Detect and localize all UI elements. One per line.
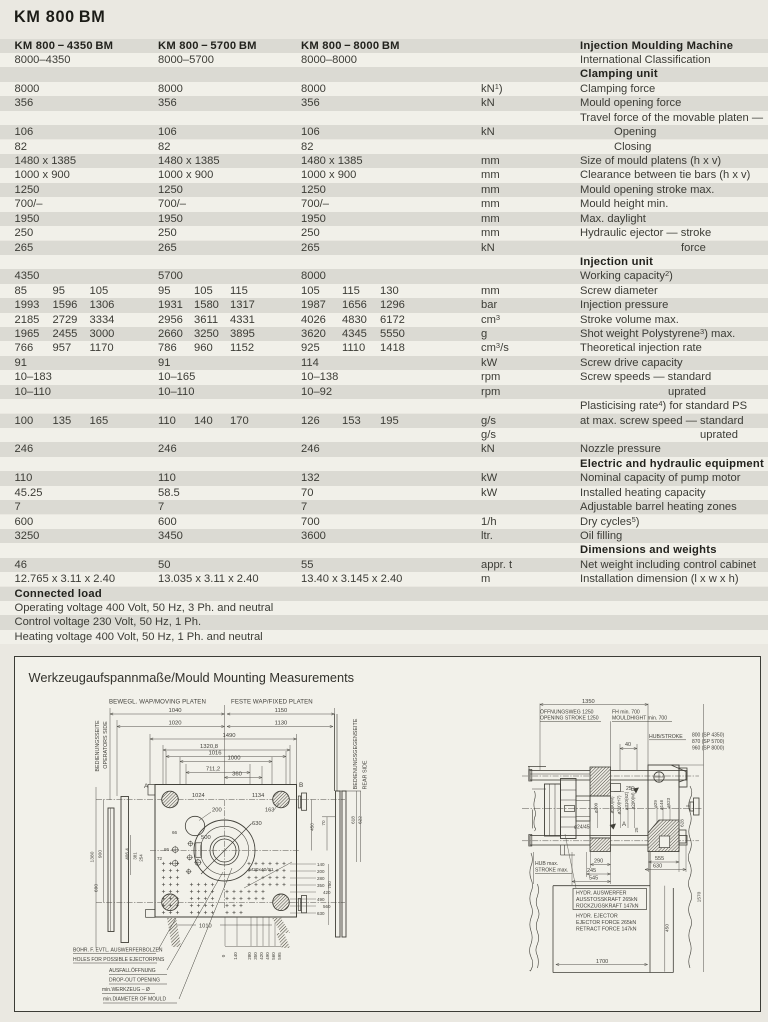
svg-text:280: 280 <box>247 952 252 960</box>
svg-text:628: 628 <box>680 819 685 827</box>
svg-text:1016: 1016 <box>208 750 222 756</box>
svg-text:163: 163 <box>265 808 274 814</box>
svg-text:1020: 1020 <box>168 720 182 726</box>
svg-text:560: 560 <box>323 904 331 909</box>
svg-text:ø500(M): ø500(M) <box>610 796 615 814</box>
svg-text:B: B <box>299 782 303 789</box>
svg-text:420: 420 <box>323 890 331 895</box>
svg-text:450: 450 <box>665 924 671 932</box>
svg-text:RÜCKZUGSKRAFT 147kN: RÜCKZUGSKRAFT 147kN <box>576 903 639 910</box>
svg-text:1350: 1350 <box>582 699 595 705</box>
svg-text:Werkzeugaufspannmaße/Mould Mou: Werkzeugaufspannmaße/Mould Mounting Meas… <box>29 670 355 685</box>
svg-text:200: 200 <box>212 808 222 814</box>
svg-text:1130: 1130 <box>275 720 288 726</box>
svg-text:140: 140 <box>317 862 325 867</box>
svg-text:ø200: ø200 <box>594 802 599 813</box>
svg-text:960 (SP 8000): 960 (SP 8000) <box>692 746 724 752</box>
svg-text:25: 25 <box>634 827 639 833</box>
svg-text:min.DIAMETER OF MOULD: min.DIAMETER OF MOULD <box>103 997 166 1003</box>
svg-text:595: 595 <box>277 952 282 960</box>
svg-text:1000: 1000 <box>227 755 241 761</box>
svg-text:HYDR. EJECTOR: HYDR. EJECTOR <box>576 914 618 920</box>
svg-text:140: 140 <box>233 952 238 960</box>
svg-text:86: 86 <box>164 847 170 852</box>
svg-text:ø29: ø29 <box>653 800 658 808</box>
svg-text:MOULDHIGHT min. 700: MOULDHIGHT min. 700 <box>612 716 667 722</box>
svg-text:70: 70 <box>321 820 326 826</box>
svg-text:500: 500 <box>201 835 211 841</box>
svg-text:AUSFALLÖFFNUNG: AUSFALLÖFFNUNG <box>109 967 156 974</box>
svg-text:555: 555 <box>655 856 664 862</box>
svg-text:900: 900 <box>98 850 104 858</box>
svg-text:630: 630 <box>653 864 662 870</box>
svg-text:M20x40/S1: M20x40/S1 <box>249 867 274 873</box>
svg-text:1320,8: 1320,8 <box>200 744 219 750</box>
svg-text:1700: 1700 <box>596 959 608 965</box>
svg-text:BEWEGL. WAP/MOVING PLATEN: BEWEGL. WAP/MOVING PLATEN <box>109 699 206 706</box>
svg-text:750: 750 <box>327 881 332 889</box>
svg-text:BEDIENUNGSSEITE: BEDIENUNGSSEITE <box>95 720 101 772</box>
svg-text:1380: 1380 <box>90 851 96 862</box>
svg-text:800 (SP 4350): 800 (SP 4350) <box>692 733 724 739</box>
svg-text:ø146: ø146 <box>659 799 664 810</box>
svg-text:STROKE max.: STROKE max. <box>535 868 568 874</box>
svg-text:72: 72 <box>157 856 163 861</box>
svg-text:ø310(H7): ø310(H7) <box>617 795 622 815</box>
svg-text:254: 254 <box>139 854 144 862</box>
svg-text:360: 360 <box>232 771 243 777</box>
svg-text:350: 350 <box>317 883 325 888</box>
svg-text:HUB/STROKE: HUB/STROKE <box>649 734 683 740</box>
svg-text:HOLES FOR POSSIBLE EJECTORPINS: HOLES FOR POSSIBLE EJECTORPINS <box>73 957 165 963</box>
svg-text:A: A <box>622 822 626 828</box>
svg-text:1570: 1570 <box>697 891 703 902</box>
svg-text:450: 450 <box>310 823 315 831</box>
svg-text:1150: 1150 <box>275 708 288 714</box>
svg-text:HUB max.: HUB max. <box>535 861 558 867</box>
svg-text:DROP-OUT OPENING: DROP-OUT OPENING <box>109 978 160 984</box>
svg-text:280: 280 <box>317 876 325 881</box>
svg-text:630: 630 <box>252 821 262 827</box>
svg-text:1134: 1134 <box>252 793 264 799</box>
svg-text:622: 622 <box>358 816 363 824</box>
svg-text:HYDR. AUSWERFER: HYDR. AUSWERFER <box>576 891 627 897</box>
svg-text:406,4: 406,4 <box>125 848 130 860</box>
svg-text:40: 40 <box>625 742 631 748</box>
svg-text:ÖFFNUNGSWEG 1250: ÖFFNUNGSWEG 1250 <box>540 709 594 716</box>
svg-text:min.WERKZEUG – Ø: min.WERKZEUG – Ø <box>102 987 150 993</box>
svg-text:OPERATORS SIDE: OPERATORS SIDE <box>103 721 109 769</box>
svg-text:490: 490 <box>317 897 325 902</box>
svg-text:545: 545 <box>589 876 598 882</box>
svg-text:ø310(6Z): ø310(6Z) <box>624 791 629 810</box>
svg-text:ø24/45: ø24/45 <box>574 825 590 831</box>
svg-text:490: 490 <box>265 952 270 960</box>
svg-text:OPENING STROKE 1250: OPENING STROKE 1250 <box>540 716 599 722</box>
svg-text:ø523: ø523 <box>666 797 671 808</box>
svg-text:630: 630 <box>317 911 325 916</box>
svg-text:ø200(M): ø200(M) <box>631 792 636 810</box>
svg-text:870 (SP 5700): 870 (SP 5700) <box>692 739 724 745</box>
svg-text:0: 0 <box>221 954 226 957</box>
svg-text:1024: 1024 <box>192 793 205 799</box>
svg-text:BEDIENUNGSGEGENSEITE: BEDIENUNGSGEGENSEITE <box>353 718 359 789</box>
svg-text:420: 420 <box>259 952 264 960</box>
svg-text:690: 690 <box>94 884 100 892</box>
svg-text:618: 618 <box>351 816 356 824</box>
svg-text:REAR SIDE: REAR SIDE <box>363 760 369 789</box>
svg-text:FESTE WAP/FIXED PLATEN: FESTE WAP/FIXED PLATEN <box>231 699 313 706</box>
svg-text:350: 350 <box>253 952 258 960</box>
svg-text:1490: 1490 <box>222 733 236 739</box>
svg-text:BOHR. F. EVTL. AUSWERFERBOLZEN: BOHR. F. EVTL. AUSWERFERBOLZEN <box>73 948 163 954</box>
svg-text:290: 290 <box>594 859 603 865</box>
svg-text:560: 560 <box>271 952 276 960</box>
svg-text:200: 200 <box>317 869 325 874</box>
svg-text:RETRACT FORCE 147kN: RETRACT FORCE 147kN <box>576 927 637 933</box>
svg-text:1010: 1010 <box>199 924 212 930</box>
svg-text:66: 66 <box>172 830 178 835</box>
svg-text:EJECTOR FORCE 265kN: EJECTOR FORCE 265kN <box>576 920 636 926</box>
svg-text:1040: 1040 <box>168 708 182 714</box>
svg-text:711,2: 711,2 <box>206 766 220 772</box>
svg-text:AUSSTOSSKRAFT 265kN: AUSSTOSSKRAFT 265kN <box>576 897 638 903</box>
svg-text:381: 381 <box>133 852 138 860</box>
